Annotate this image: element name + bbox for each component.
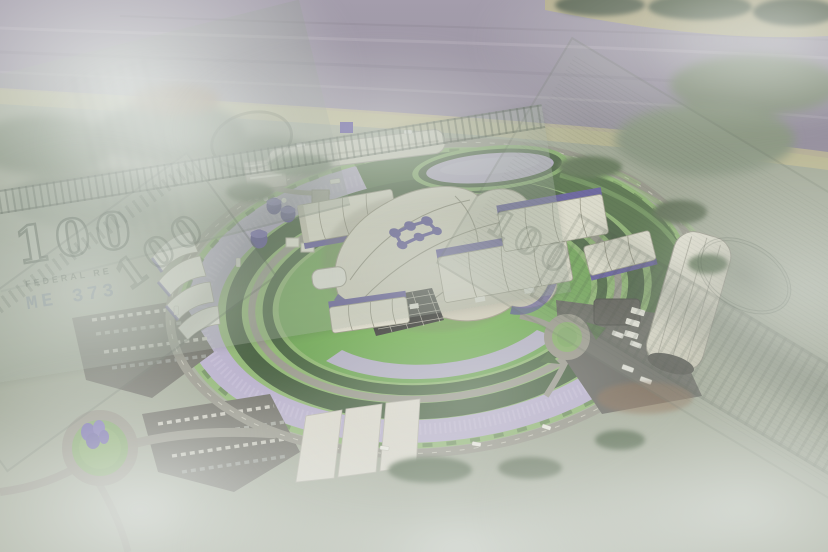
campus-render	[0, 0, 828, 552]
aerial-campus-money-composite: 100 FEDERAL RE ME 373 100 100	[0, 0, 828, 552]
roundabout-west	[65, 413, 135, 483]
